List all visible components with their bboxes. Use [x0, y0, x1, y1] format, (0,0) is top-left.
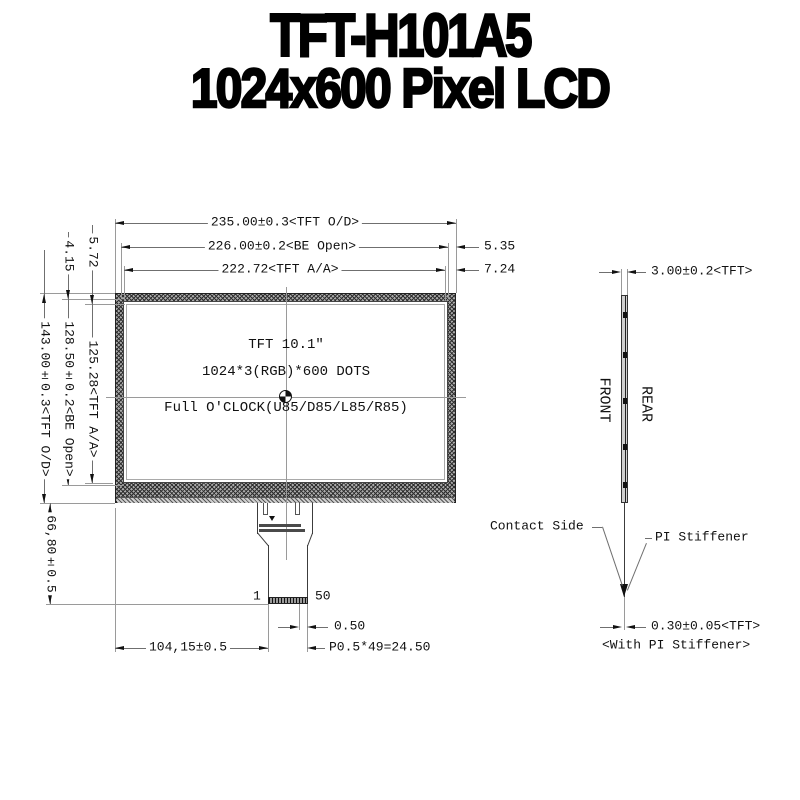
side-profile-tick	[623, 352, 627, 358]
arrowhead	[66, 290, 70, 299]
spec-sheet: TFT-H101A5 1024x600 Pixel LCD TFT 10.1″ …	[0, 0, 800, 800]
arrowhead	[124, 268, 133, 272]
arrowhead	[42, 294, 46, 303]
leader-line	[627, 543, 647, 591]
arrowhead	[307, 625, 316, 629]
dim-line	[316, 627, 328, 628]
dim-line	[465, 270, 479, 271]
panel-resolution-text: 1024*3(RGB)*600 DOTS	[202, 365, 370, 379]
dim-right-be-offset: 5.35	[481, 240, 518, 255]
stiffener-note: <With PI Stiffener>	[599, 639, 753, 654]
fpc-edge	[312, 503, 313, 534]
panel-size-text: TFT 10.1″	[248, 338, 324, 352]
page-title: TFT-H101A5	[72, 8, 728, 63]
dim-top-aa-offset: 5.72	[85, 233, 100, 270]
pi-stiffener-label: PI Stiffener	[652, 531, 752, 546]
dim-line	[599, 272, 612, 273]
arrowhead	[48, 595, 52, 604]
title-block: TFT-H101A5 1024x600 Pixel LCD	[0, 8, 800, 114]
arrowhead	[447, 221, 456, 225]
side-fpc-tail-line	[624, 503, 625, 597]
side-profile-tick	[623, 482, 627, 488]
dim-height-be: 128.50±0.2<BE Open>	[61, 318, 76, 479]
arrowhead	[456, 268, 465, 272]
dim-line	[316, 648, 325, 649]
dim-height-aa: 125.28<TFT A/A>	[85, 337, 100, 460]
centerline-vertical	[286, 287, 287, 560]
front-side-label: FRONT	[595, 374, 612, 425]
arrowhead	[290, 625, 299, 629]
arrowhead	[456, 245, 465, 249]
arrowhead	[613, 625, 622, 629]
fpc-edge	[257, 503, 258, 534]
dim-pitch-total: P0.5*49=24.50	[326, 641, 433, 656]
arrowhead	[42, 494, 46, 503]
witness-line	[624, 597, 625, 630]
rear-side-label: REAR	[637, 383, 654, 425]
pin-last-label: 50	[312, 590, 334, 605]
witness-line	[115, 219, 116, 293]
dim-line	[465, 247, 479, 248]
fpc-marking-line	[259, 524, 301, 527]
pin-first-label: 1	[250, 590, 264, 605]
witness-line	[85, 483, 113, 484]
arrowhead	[90, 295, 94, 304]
fpc-tail-edge	[307, 545, 308, 598]
dim-line	[635, 627, 646, 628]
witness-line	[445, 266, 446, 301]
fpc-slot	[295, 503, 300, 515]
witness-line	[621, 269, 622, 295]
side-profile-tick	[623, 444, 627, 450]
arrowhead	[121, 245, 130, 249]
dim-height-od: 143.00±0.3<TFT O/D>	[37, 318, 52, 479]
fpc-index-mark-icon	[269, 516, 275, 521]
side-profile-tick	[623, 312, 627, 318]
arrowhead	[627, 270, 636, 274]
witness-line	[268, 604, 269, 652]
fpc-marking-line	[259, 529, 305, 532]
witness-line	[62, 485, 123, 486]
fpc-slot	[263, 503, 268, 515]
fpc-taper	[257, 532, 269, 546]
dim-line	[278, 627, 290, 628]
dim-top-be-offset: 4.15	[61, 237, 76, 274]
contact-side-label: Contact Side	[487, 520, 587, 535]
page-subtitle: 1024x600 Pixel LCD	[52, 63, 748, 114]
arrowhead	[259, 646, 268, 650]
arrowhead	[115, 646, 124, 650]
leader-line	[592, 527, 602, 528]
witness-line	[115, 508, 116, 652]
fpc-contact-pins	[268, 597, 308, 604]
witness-line	[121, 243, 122, 299]
arrowhead	[115, 221, 124, 225]
dim-line	[636, 272, 646, 273]
witness-line	[46, 604, 268, 605]
panel-viewing-text: Full O'CLOCK(U85/D85/L85/R85)	[164, 401, 408, 415]
arrowhead	[307, 646, 316, 650]
witness-line	[456, 219, 457, 293]
dim-thickness: 3.00±0.2<TFT>	[648, 265, 755, 280]
dim-pitch-edge: 0.50	[331, 620, 368, 635]
arrowhead	[436, 268, 445, 272]
dim-fpc-length: 66,80±0.5	[43, 512, 58, 595]
witness-line	[299, 604, 300, 630]
arrowhead	[439, 245, 448, 249]
arrowhead	[626, 625, 635, 629]
dim-fpc-thickness: 0.30±0.05<TFT>	[648, 620, 763, 635]
side-profile-tick	[623, 398, 627, 404]
witness-line	[85, 304, 125, 305]
dim-width-be: 226.00±0.2<BE Open>	[205, 240, 359, 255]
dim-tail-offset: 104,15±0.5	[146, 641, 230, 656]
witness-line	[448, 243, 449, 299]
dim-line	[600, 627, 613, 628]
dim-width-od: 235.00±0.3<TFT O/D>	[208, 216, 362, 231]
witness-line	[40, 293, 115, 294]
leader-line	[645, 538, 652, 539]
fpc-tail-edge	[268, 545, 269, 598]
leader-line	[602, 527, 623, 586]
dim-right-aa-offset: 7.24	[481, 263, 518, 278]
dim-width-aa: 222.72<TFT A/A>	[218, 263, 341, 278]
arrowhead	[612, 270, 621, 274]
arrowhead	[90, 474, 94, 483]
